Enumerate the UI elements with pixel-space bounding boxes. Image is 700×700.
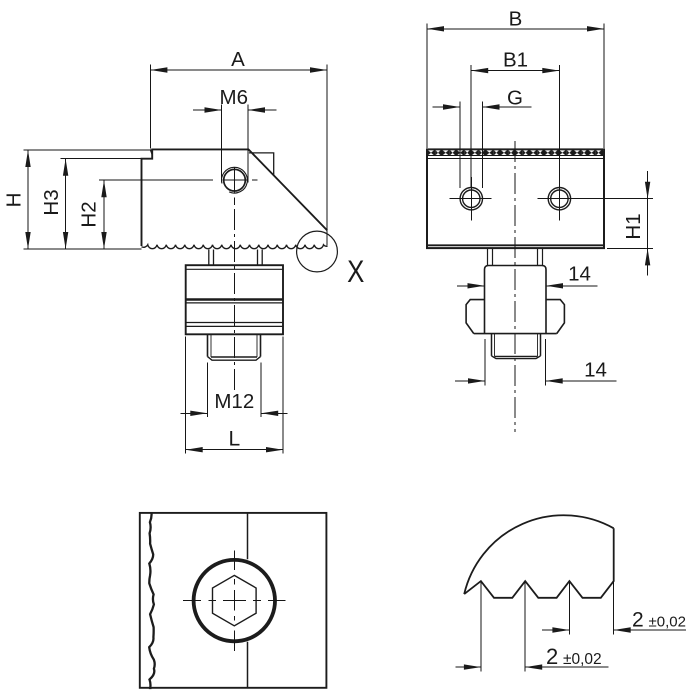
svg-text:M12: M12 — [214, 390, 254, 413]
svg-text:G: G — [507, 87, 523, 110]
svg-text:H1: H1 — [622, 213, 645, 239]
svg-text:H3: H3 — [40, 189, 63, 215]
svg-text:H: H — [3, 193, 26, 208]
svg-text:±0,02: ±0,02 — [649, 614, 686, 631]
svg-text:A: A — [231, 48, 245, 71]
svg-text:X: X — [347, 255, 364, 290]
svg-text:2: 2 — [546, 644, 558, 669]
svg-text:M6: M6 — [220, 86, 248, 109]
svg-text:L: L — [228, 428, 240, 451]
svg-text:B: B — [509, 8, 523, 31]
svg-text:B1: B1 — [503, 49, 528, 72]
svg-text:±0,02: ±0,02 — [563, 651, 602, 668]
svg-text:14: 14 — [584, 359, 607, 382]
svg-text:2: 2 — [632, 609, 644, 632]
svg-text:14: 14 — [568, 263, 591, 286]
svg-text:H2: H2 — [78, 201, 101, 227]
